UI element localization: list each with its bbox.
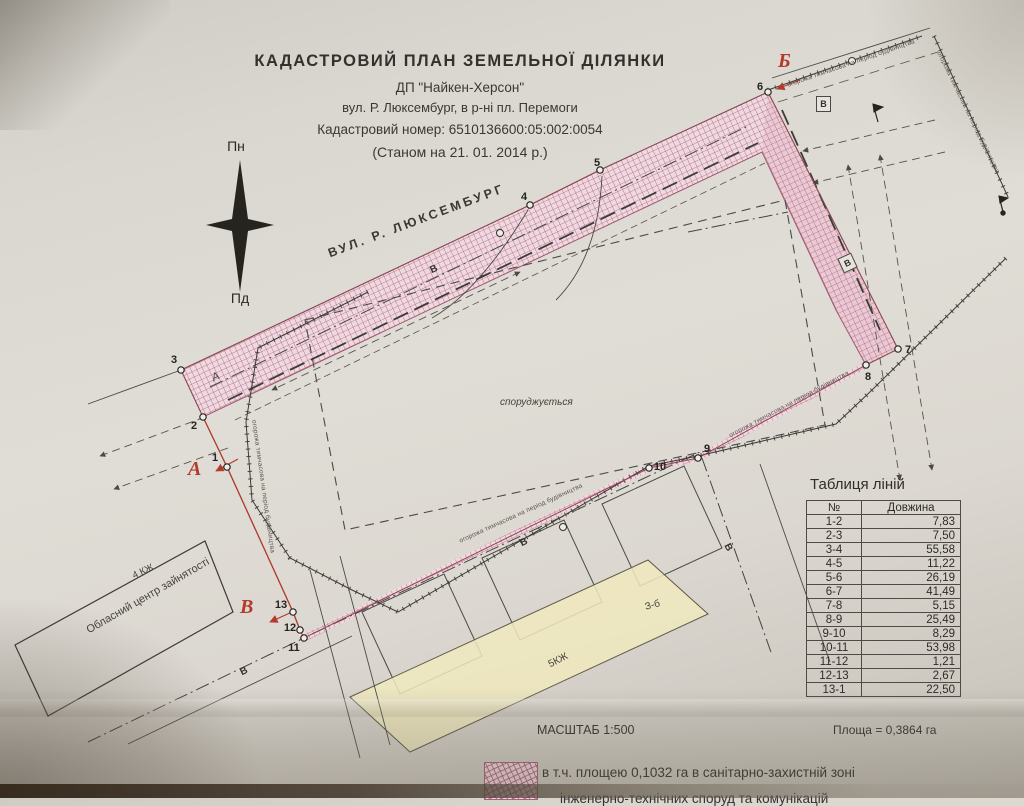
lines-table-title: Таблиця ліній: [810, 476, 905, 493]
point-label-3: 3: [164, 354, 184, 366]
construction-site-outline: [305, 200, 825, 530]
table-row: 1-27,83: [807, 515, 961, 529]
section-mark-b: Б: [778, 50, 791, 73]
as-of-date: (Станом на 21. 01. 2014 р.): [240, 144, 680, 160]
table-cell: 5-6: [807, 571, 862, 585]
cadastral-number: Кадастровий номер: 6510136600:05:002:005…: [240, 122, 680, 137]
table-cell: 41,49: [862, 585, 961, 599]
table-cell: 13-1: [807, 683, 862, 697]
compass-star: [206, 160, 274, 292]
table-cell: 25,49: [862, 613, 961, 627]
table-row: 6-741,49: [807, 585, 961, 599]
table-row: 13-122,50: [807, 683, 961, 697]
section-mark-a: А: [188, 458, 201, 481]
thin-dash-line: [235, 163, 765, 420]
sanitary-zone-hatched-band: [181, 92, 898, 417]
lines-table: № Довжина 1-27,832-37,503-455,584-511,22…: [806, 500, 961, 697]
table-cell: 8-9: [807, 613, 862, 627]
point-label-9: 9: [697, 443, 717, 455]
table-row: 11-121,21: [807, 655, 961, 669]
table-cell: 7,50: [862, 529, 961, 543]
table-row: 8-925,49: [807, 613, 961, 627]
table-cell: 11-12: [807, 655, 862, 669]
table-cell: 8,29: [862, 627, 961, 641]
table-cell: 7-8: [807, 599, 862, 613]
table-row: 5-626,19: [807, 571, 961, 585]
point-label-4: 4: [514, 191, 534, 203]
point-label-11: 11: [284, 642, 304, 654]
table-cell: 5,15: [862, 599, 961, 613]
lines-table-header: № Довжина: [807, 501, 961, 515]
table-cell: 3-4: [807, 543, 862, 557]
table-row: 2-37,50: [807, 529, 961, 543]
table-row: 4-511,22: [807, 557, 961, 571]
section-mark-v: В: [240, 596, 253, 619]
table-cell: 12-13: [807, 669, 862, 683]
table-row: 10-1153,98: [807, 641, 961, 655]
table-cell: 9-10: [807, 627, 862, 641]
table-row: 3-455,58: [807, 543, 961, 557]
table-cell: 55,58: [862, 543, 961, 557]
point-label-1: 1: [205, 452, 225, 464]
water-valve-box: В: [816, 96, 831, 112]
table-cell: 7,83: [862, 515, 961, 529]
table-cell: 4-5: [807, 557, 862, 571]
table-cell: 53,98: [862, 641, 961, 655]
scale-label: МАСШТАБ 1:500: [537, 723, 634, 737]
point-label-7: 7: [898, 344, 918, 356]
point-label-5: 5: [587, 157, 607, 169]
table-cell: 11,22: [862, 557, 961, 571]
plot-location: вул. Р. Люксембург, в р-ні пл. Перемоги: [240, 100, 680, 115]
table-cell: 10-11: [807, 641, 862, 655]
point-label-6: 6: [750, 81, 770, 93]
legend-text-line1: в т.ч. площею 0,1032 га в санітарно-захи…: [542, 765, 855, 780]
under-construction-label: споруджується: [500, 397, 610, 408]
page-title: КАДАСТРОВИЙ ПЛАН ЗЕМЕЛЬНОЇ ДІЛЯНКИ: [240, 52, 680, 71]
legend-text-line2: інженерно-технічних споруд та комунікаці…: [560, 791, 828, 806]
col-length: Довжина: [862, 501, 961, 515]
table-cell: 1-2: [807, 515, 862, 529]
company-name: ДП "Найкен-Херсон": [240, 80, 680, 95]
table-cell: 1,21: [862, 655, 961, 669]
compass-south-label: Пд: [220, 290, 260, 306]
compass-north-label: Пн: [216, 138, 256, 154]
total-area-label: Площа = 0,3864 га: [833, 723, 936, 737]
point-label-10: 10: [650, 461, 670, 473]
table-row: 7-85,15: [807, 599, 961, 613]
scanned-cadastral-plan-photo: { "document": { "title": "КАДАСТРОВИЙ ПЛ…: [0, 0, 1024, 798]
table-cell: 2,67: [862, 669, 961, 683]
point-label-8: 8: [858, 371, 878, 383]
col-number: №: [807, 501, 862, 515]
table-row: 9-108,29: [807, 627, 961, 641]
point-label-13: 13: [271, 599, 291, 611]
point-label-2: 2: [184, 420, 204, 432]
table-cell: 6-7: [807, 585, 862, 599]
legend-hatch-swatch: [484, 762, 538, 800]
table-row: 12-132,67: [807, 669, 961, 683]
table-cell: 2-3: [807, 529, 862, 543]
table-cell: 26,19: [862, 571, 961, 585]
table-cell: 22,50: [862, 683, 961, 697]
